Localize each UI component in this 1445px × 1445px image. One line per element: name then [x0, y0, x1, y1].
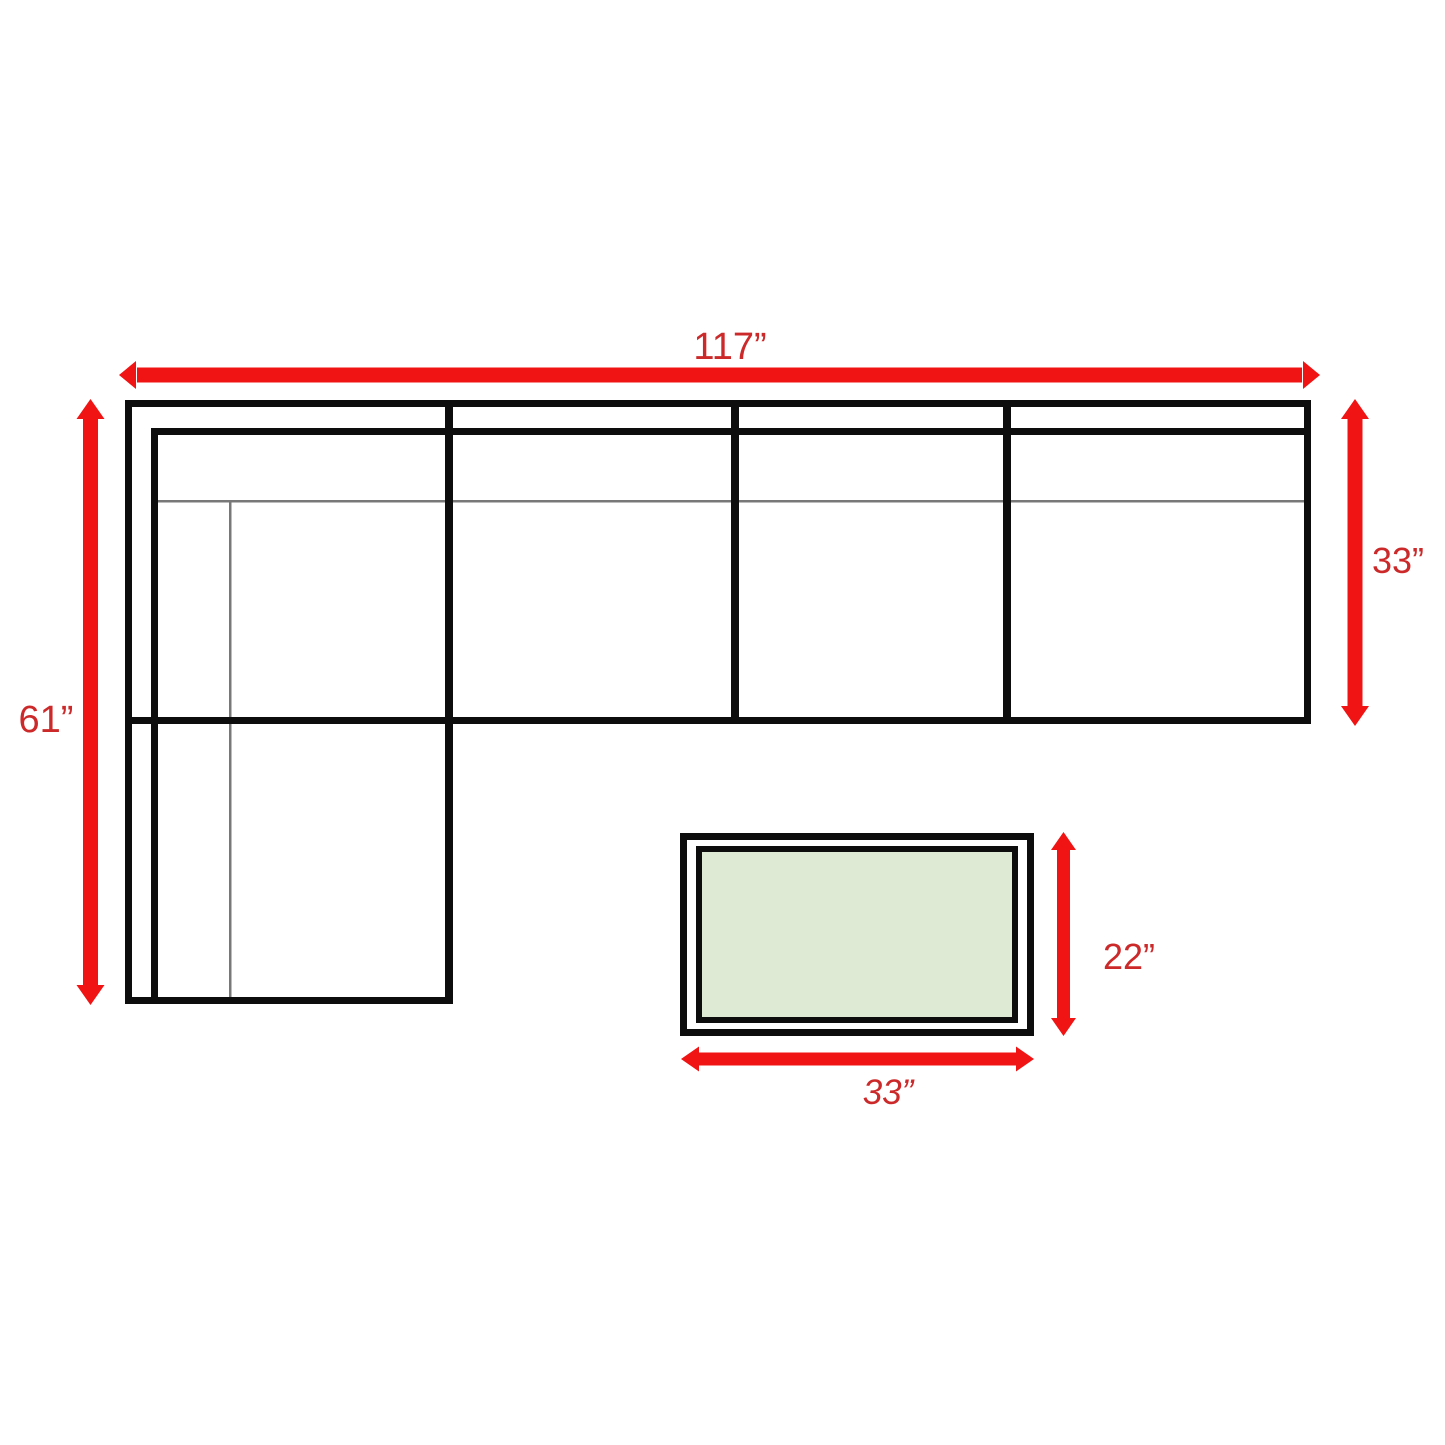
svg-text:61”: 61”	[19, 699, 74, 741]
svg-text:33”: 33”	[863, 1073, 915, 1112]
svg-text:22”: 22”	[1103, 936, 1155, 977]
svg-text:33”: 33”	[1372, 540, 1424, 581]
svg-text:117”: 117”	[693, 326, 766, 368]
